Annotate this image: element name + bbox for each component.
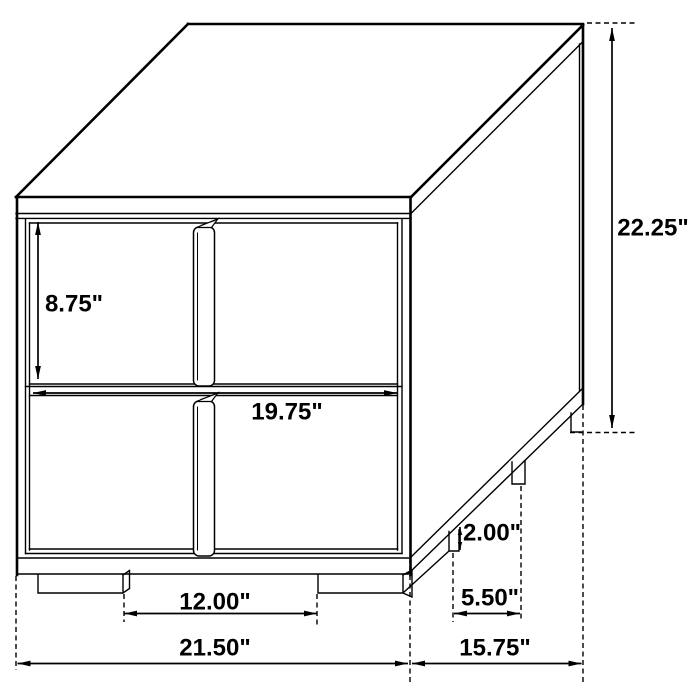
dim-side-feet-spacing: 5.50" bbox=[454, 585, 520, 617]
dim-label-front-feet-spacing: 12.00" bbox=[179, 589, 250, 616]
dim-arrowhead-drawer-height-0 bbox=[35, 222, 41, 235]
dim-arrowhead-front-feet-spacing-1 bbox=[304, 611, 317, 617]
bottom-drawer-handle bbox=[194, 401, 215, 556]
plinth-front-band bbox=[17, 558, 409, 574]
dim-foot-height: 2.00" bbox=[458, 520, 521, 551]
nightstand-line-drawing: 8.75"22.25"2.00"19.75"12.00"5.50"21.50"1… bbox=[0, 0, 700, 700]
dim-label-overall-depth: 15.75" bbox=[459, 635, 530, 662]
top-panel bbox=[16, 24, 583, 214]
plinth bbox=[17, 558, 409, 574]
dim-arrowhead-overall-depth-0 bbox=[412, 661, 425, 667]
dim-overall-height: 22.25" bbox=[609, 28, 689, 428]
dim-overall-depth: 15.75" bbox=[412, 635, 582, 667]
dim-arrowhead-overall-height-1 bbox=[609, 415, 615, 428]
top-panel-outline bbox=[16, 24, 583, 197]
dim-label-overall-width: 21.50" bbox=[179, 635, 250, 662]
dim-arrowhead-overall-depth-1 bbox=[569, 661, 582, 667]
dim-overall-width: 21.50" bbox=[18, 635, 409, 667]
dim-arrowhead-overall-width-0 bbox=[18, 661, 31, 667]
dim-drawer-height: 8.75" bbox=[35, 222, 103, 379]
dim-front-feet-spacing: 12.00" bbox=[124, 589, 317, 617]
dim-arrowhead-overall-height-0 bbox=[609, 28, 615, 41]
dim-arrowhead-front-feet-spacing-0 bbox=[124, 611, 137, 617]
dimension-diagram: 8.75"22.25"2.00"19.75"12.00"5.50"21.50"1… bbox=[0, 0, 700, 700]
dim-arrowhead-overall-width-1 bbox=[395, 661, 408, 667]
dimension-annotations: 8.75"22.25"2.00"19.75"12.00"5.50"21.50"1… bbox=[16, 23, 689, 684]
dim-label-foot-height: 2.00" bbox=[463, 520, 521, 547]
top-drawer-handle bbox=[194, 227, 215, 386]
dim-label-drawer-height: 8.75" bbox=[45, 291, 103, 318]
dim-label-overall-height: 22.25" bbox=[617, 215, 688, 242]
top-panel-thickness bbox=[16, 42, 583, 214]
dim-label-drawer-width: 19.75" bbox=[251, 399, 322, 426]
dim-arrowhead-drawer-height-1 bbox=[35, 366, 41, 379]
drawer-handles bbox=[194, 227, 215, 556]
feet bbox=[38, 413, 582, 597]
dim-label-side-feet-spacing: 5.50" bbox=[461, 585, 519, 612]
